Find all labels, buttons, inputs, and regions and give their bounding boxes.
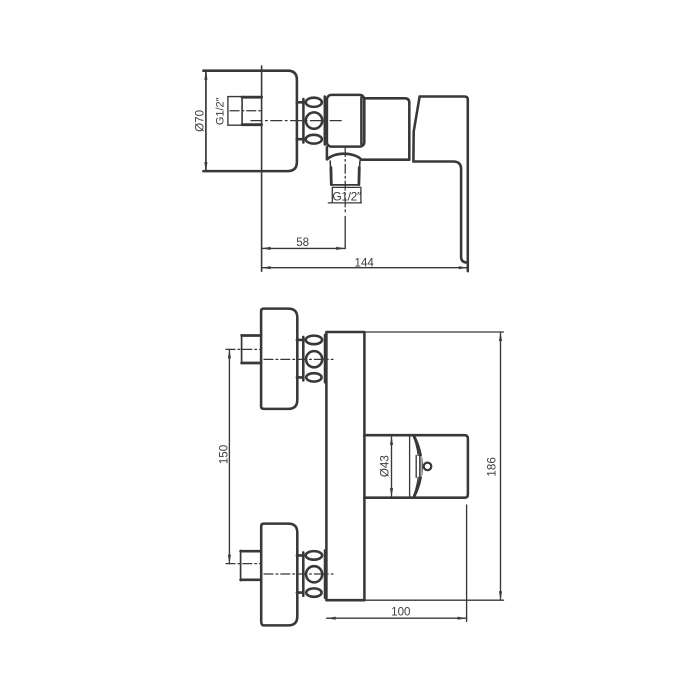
svg-text:Ø43: Ø43 xyxy=(378,455,391,477)
svg-text:100: 100 xyxy=(391,606,410,619)
svg-text:186: 186 xyxy=(486,457,499,476)
svg-text:150: 150 xyxy=(217,445,230,464)
svg-text:G1/2″: G1/2″ xyxy=(332,190,362,204)
svg-text:144: 144 xyxy=(355,256,375,269)
svg-text:Ø70: Ø70 xyxy=(194,110,207,132)
svg-text:G1/2″: G1/2″ xyxy=(214,97,226,125)
svg-text:58: 58 xyxy=(296,236,309,249)
